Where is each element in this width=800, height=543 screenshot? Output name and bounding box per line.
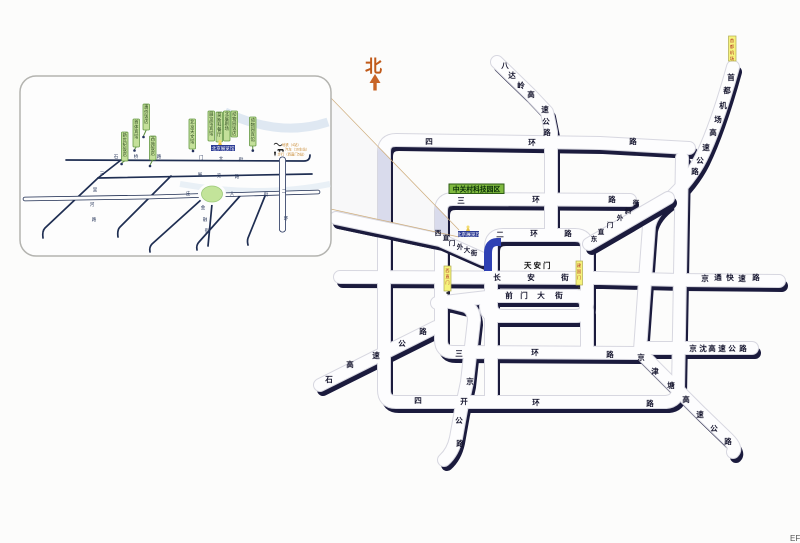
svg-text:首: 首 [727, 72, 735, 82]
svg-text:三: 三 [100, 171, 105, 176]
svg-text:西: 西 [435, 229, 442, 237]
svg-text:路: 路 [456, 438, 464, 448]
svg-text:馆: 馆 [190, 138, 195, 145]
svg-text:河: 河 [90, 201, 95, 207]
svg-text:环: 环 [532, 398, 540, 407]
svg-text:街: 街 [632, 198, 640, 207]
svg-text:街: 街 [205, 227, 210, 234]
svg-text:馆: 馆 [251, 136, 256, 143]
svg-text:大: 大 [230, 190, 235, 197]
svg-text:环: 环 [531, 348, 539, 357]
svg-text:首: 首 [730, 37, 734, 44]
svg-text:览: 览 [217, 172, 222, 179]
svg-text:速: 速 [696, 409, 704, 419]
svg-text:直: 直 [598, 227, 605, 236]
svg-text:路: 路 [543, 127, 551, 137]
svg-text:中关村科技园区: 中关村科技园区 [453, 185, 501, 194]
svg-text:场: 场 [730, 55, 734, 62]
svg-text:北京展览馆: 北京展览馆 [212, 145, 235, 152]
svg-text:大: 大 [219, 155, 224, 162]
svg-text:东: 东 [591, 234, 598, 243]
svg-text:街: 街 [239, 156, 244, 163]
svg-text:四: 四 [425, 137, 433, 146]
svg-text:公: 公 [696, 156, 704, 165]
svg-text:公: 公 [455, 416, 463, 425]
svg-text:岭: 岭 [517, 80, 525, 90]
svg-text:京: 京 [701, 273, 709, 283]
svg-text:街: 街 [554, 290, 563, 300]
svg-text:路: 路 [739, 343, 747, 353]
svg-text:京: 京 [466, 376, 474, 386]
svg-text:店: 店 [232, 130, 237, 137]
svg-text:速: 速 [702, 142, 710, 152]
svg-text:路: 路 [629, 136, 637, 146]
svg-text:津: 津 [651, 366, 659, 376]
svg-text:公: 公 [542, 117, 550, 126]
svg-text:路: 路 [752, 272, 760, 282]
svg-text:庄: 庄 [186, 190, 191, 197]
svg-text:通: 通 [714, 272, 722, 282]
svg-text:北京展览馆: 北京展览馆 [457, 231, 481, 238]
svg-text:路: 路 [157, 153, 162, 160]
svg-text:环: 环 [528, 138, 536, 147]
svg-text:外: 外 [457, 242, 464, 251]
svg-text:四: 四 [414, 396, 422, 405]
svg-text:场: 场 [714, 114, 722, 124]
svg-text:斜: 斜 [624, 206, 632, 215]
svg-text:环: 环 [530, 229, 538, 238]
svg-text:路: 路 [92, 216, 97, 223]
svg-text:路: 路 [564, 228, 572, 238]
svg-text:汽车（16车站）: 汽车（16车站） [285, 147, 309, 152]
svg-text:金: 金 [201, 204, 206, 210]
svg-text:速: 速 [541, 104, 549, 114]
svg-text:门: 门 [607, 220, 614, 229]
svg-text:街: 街 [470, 248, 478, 257]
svg-text:二: 二 [496, 230, 504, 239]
svg-text:开: 开 [460, 397, 468, 406]
svg-text:馆: 馆 [209, 130, 214, 137]
svg-text:达: 达 [508, 70, 516, 80]
svg-text:快: 快 [726, 272, 734, 282]
svg-text:外: 外 [617, 213, 624, 222]
svg-text:八: 八 [500, 61, 509, 70]
svg-text:机: 机 [719, 100, 727, 110]
svg-text:环: 环 [532, 195, 540, 204]
svg-text:街: 街 [560, 272, 569, 282]
svg-text:厅: 厅 [217, 132, 222, 137]
svg-text:前: 前 [505, 290, 513, 300]
svg-text:门: 门 [520, 290, 528, 300]
svg-text:速: 速 [372, 350, 380, 360]
svg-text:高: 高 [527, 89, 535, 99]
svg-text:融: 融 [203, 216, 208, 223]
svg-text:馆: 馆 [134, 133, 139, 140]
svg-text:安: 安 [527, 272, 535, 282]
svg-text:高: 高 [682, 394, 690, 404]
svg-text:街: 街 [264, 191, 269, 198]
svg-text:高: 高 [346, 359, 354, 369]
svg-text:大: 大 [464, 245, 471, 254]
svg-text:塘: 塘 [667, 380, 675, 390]
svg-text:公: 公 [710, 424, 718, 433]
svg-text:地铁（4站）: 地铁（4站） [282, 142, 301, 147]
svg-text:门: 门 [449, 238, 456, 247]
svg-text:EF: EF [790, 534, 800, 543]
svg-text:步行（西直门5站）: 步行（西直门5站） [278, 152, 307, 157]
svg-text:京: 京 [689, 343, 697, 353]
svg-text:速: 速 [738, 273, 746, 283]
svg-text:场: 场 [225, 125, 230, 132]
svg-text:店: 店 [144, 118, 149, 125]
svg-text:路: 路 [608, 194, 616, 204]
svg-text:三: 三 [457, 196, 465, 205]
svg-text:门: 门 [199, 154, 204, 161]
svg-text:速: 速 [718, 343, 726, 353]
svg-text:高: 高 [709, 127, 717, 137]
svg-text:沈: 沈 [699, 343, 707, 353]
svg-text:石: 石 [324, 375, 333, 384]
svg-text:路: 路 [691, 166, 699, 176]
svg-text:里: 里 [93, 187, 98, 192]
svg-text:桥: 桥 [134, 153, 139, 160]
svg-text:公: 公 [398, 339, 406, 348]
svg-text:大: 大 [537, 290, 545, 300]
svg-text:北: 北 [365, 57, 382, 76]
svg-text:门: 门 [445, 279, 449, 286]
svg-text:店: 店 [151, 150, 156, 157]
svg-text:路: 路 [606, 349, 614, 359]
svg-text:直: 直 [445, 273, 449, 279]
svg-text:都: 都 [722, 85, 731, 95]
svg-text:店: 店 [123, 151, 128, 158]
svg-text:公: 公 [728, 344, 736, 353]
svg-text:天安门: 天安门 [524, 260, 553, 270]
svg-text:三: 三 [455, 349, 463, 358]
svg-text:路: 路 [419, 326, 427, 336]
svg-text:京: 京 [637, 352, 645, 362]
svg-text:路: 路 [235, 173, 240, 180]
svg-text:门: 门 [577, 274, 581, 281]
svg-text:路: 路 [724, 436, 732, 446]
svg-text:高: 高 [708, 343, 716, 353]
svg-text:路: 路 [646, 398, 654, 408]
svg-text:长: 长 [493, 272, 501, 282]
svg-text:二: 二 [282, 189, 287, 194]
